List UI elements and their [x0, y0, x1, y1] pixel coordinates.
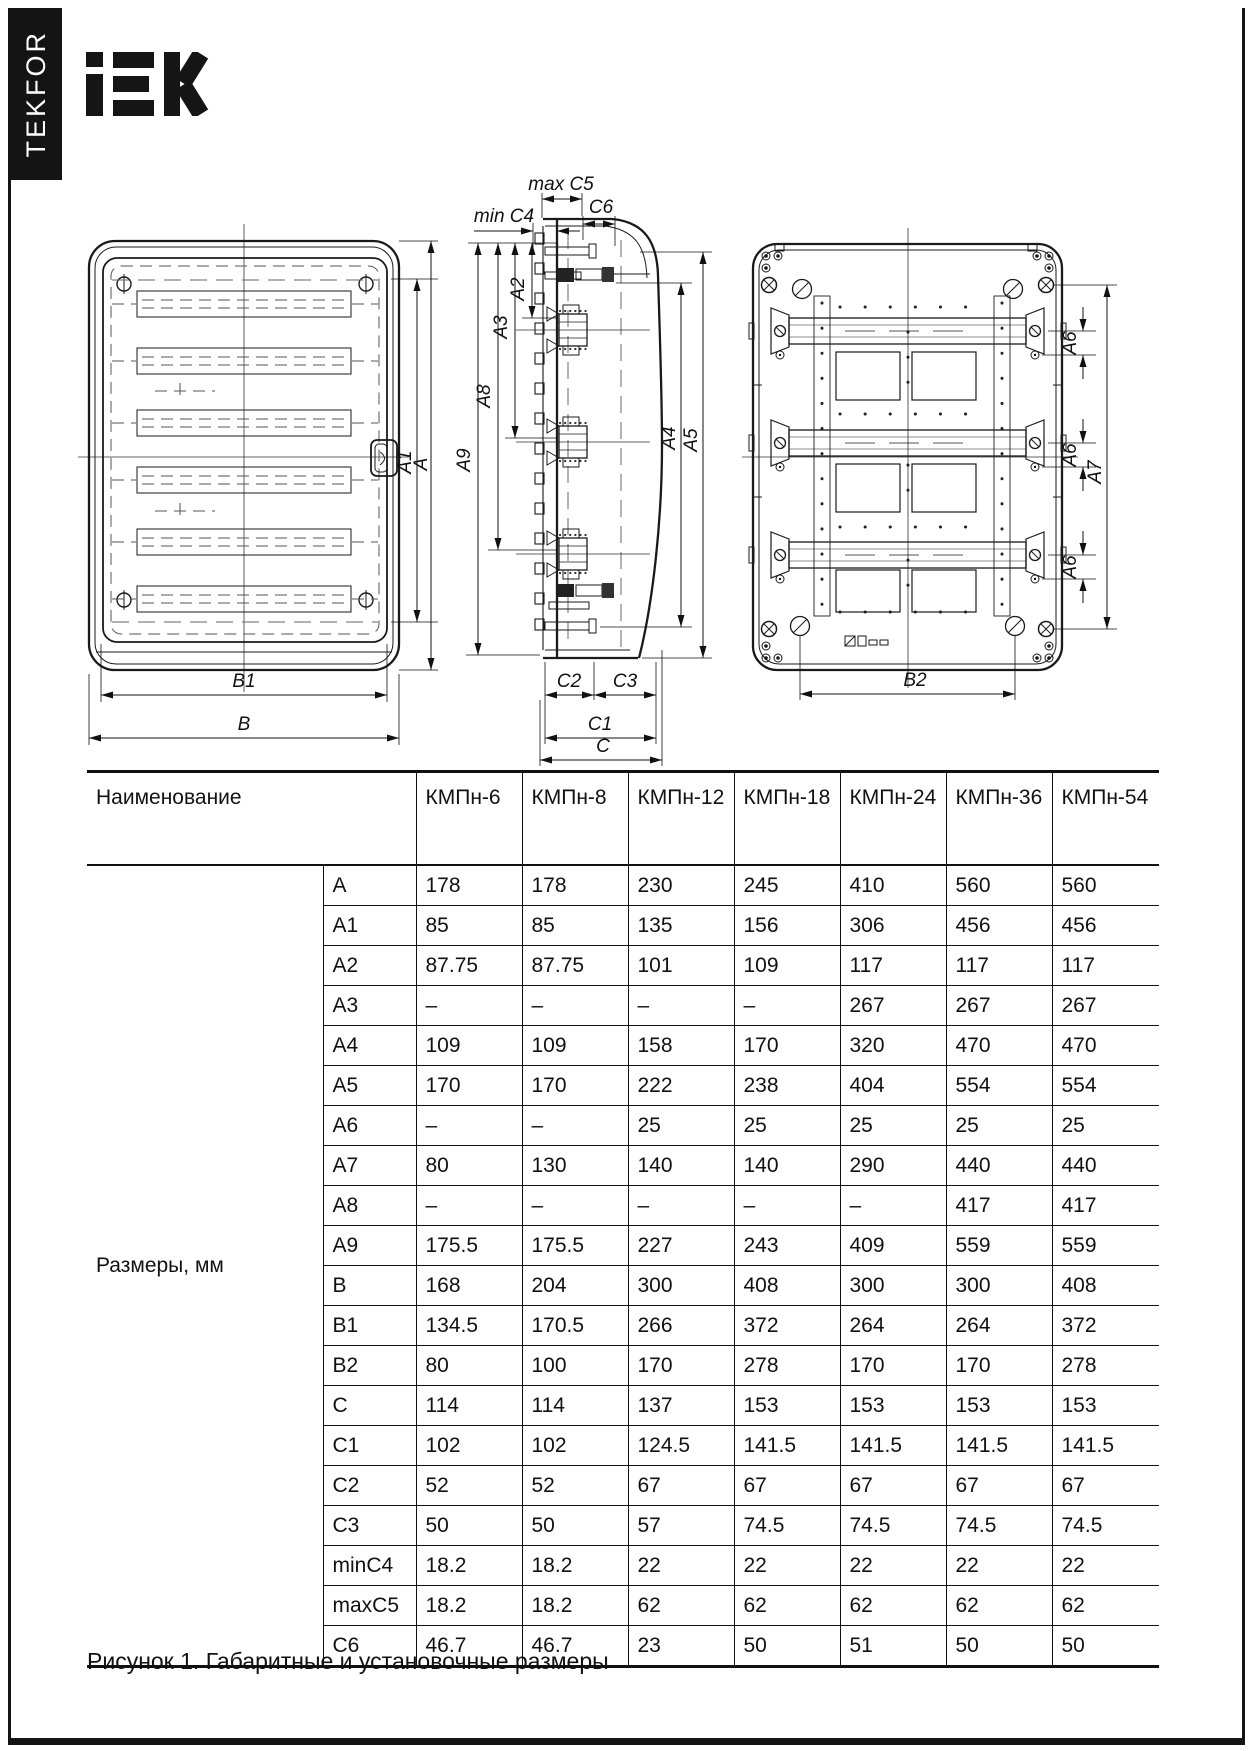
value-cell: 130 [522, 1146, 628, 1186]
dim-label-a9: A9 [454, 448, 475, 473]
door-screws [117, 274, 373, 610]
value-cell: 554 [1052, 1066, 1159, 1106]
value-cell: 23 [628, 1626, 734, 1667]
value-cell: 117 [946, 946, 1052, 986]
value-cell: 50 [734, 1626, 840, 1667]
figure-caption: Рисунок 1. Габаритные и установочные раз… [87, 1648, 609, 1675]
value-cell: – [734, 1186, 840, 1226]
dim-label-c6: C6 [589, 197, 614, 218]
value-cell: 25 [946, 1106, 1052, 1146]
value-cell: 170 [946, 1346, 1052, 1386]
value-cell: 25 [840, 1106, 946, 1146]
value-cell: 85 [522, 906, 628, 946]
catalog-page: TEKFOR [0, 0, 1248, 1751]
value-cell: 408 [1052, 1266, 1159, 1306]
value-cell: 560 [946, 865, 1052, 906]
header-model-label: КМПн-8 [522, 772, 628, 866]
tekfor-banner-label: TEKFOR [21, 30, 52, 158]
group-label-cell: Размеры, мм [87, 865, 323, 1667]
value-cell: – [522, 986, 628, 1026]
value-cell: 87.75 [522, 946, 628, 986]
dim-label-b: B [238, 714, 251, 735]
value-cell: 456 [946, 906, 1052, 946]
value-cell: 204 [522, 1266, 628, 1306]
value-cell: 278 [734, 1346, 840, 1386]
dim-label-cell: C2 [323, 1466, 416, 1506]
value-cell: – [522, 1186, 628, 1226]
value-cell: 409 [840, 1226, 946, 1266]
dim-label-cell: maxC5 [323, 1586, 416, 1626]
value-cell: 559 [946, 1226, 1052, 1266]
value-cell: 141.5 [734, 1426, 840, 1466]
dim-label-cell: A9 [323, 1226, 416, 1266]
dim-label-a8: A8 [474, 384, 495, 409]
value-cell: 306 [840, 906, 946, 946]
dim-label-cell: minC4 [323, 1546, 416, 1586]
value-cell: 101 [628, 946, 734, 986]
value-cell: 74.5 [946, 1506, 1052, 1546]
value-cell: 85 [416, 906, 522, 946]
value-cell: 117 [840, 946, 946, 986]
value-cell: 175.5 [522, 1226, 628, 1266]
value-cell: 62 [628, 1586, 734, 1626]
dim-label-c3: C3 [613, 671, 638, 692]
back-dimensions: A6 A6 A6 A7 B2 [800, 285, 1117, 700]
value-cell: 410 [840, 865, 946, 906]
dim-label-b1: B1 [232, 671, 255, 692]
dim-label-cell: B2 [323, 1346, 416, 1386]
dim-label-a6-2: A6 [1060, 443, 1081, 468]
value-cell: – [416, 1186, 522, 1226]
header-model-label: КМПн-24 [840, 772, 946, 866]
value-cell: 18.2 [416, 1546, 522, 1586]
value-cell: 67 [734, 1466, 840, 1506]
value-cell: 74.5 [1052, 1506, 1159, 1546]
value-cell: 158 [628, 1026, 734, 1066]
value-cell: 102 [416, 1426, 522, 1466]
value-cell: 440 [946, 1146, 1052, 1186]
dim-label-cell: C3 [323, 1506, 416, 1546]
value-cell: 50 [522, 1506, 628, 1546]
value-cell: 470 [946, 1026, 1052, 1066]
value-cell: 22 [946, 1546, 1052, 1586]
value-cell: 62 [946, 1586, 1052, 1626]
value-cell: 170 [522, 1066, 628, 1106]
dim-label-cell: A8 [323, 1186, 416, 1226]
page-right-rule [1242, 8, 1245, 1745]
value-cell: 100 [522, 1346, 628, 1386]
value-cell: 140 [628, 1146, 734, 1186]
value-cell: 62 [840, 1586, 946, 1626]
value-cell: 264 [946, 1306, 1052, 1346]
value-cell: 243 [734, 1226, 840, 1266]
value-cell: 227 [628, 1226, 734, 1266]
value-cell: – [628, 1186, 734, 1226]
certification-marks [845, 636, 888, 646]
table-row: Размеры, ммA178178230245410560560 [87, 865, 1159, 906]
value-cell: 170 [416, 1066, 522, 1106]
value-cell: – [628, 986, 734, 1026]
dim-label-b2: B2 [903, 670, 927, 691]
value-cell: 137 [628, 1386, 734, 1426]
tekfor-banner: TEKFOR [10, 8, 62, 180]
value-cell: 222 [628, 1066, 734, 1106]
front-view-drawing: A1 A B1 B [70, 200, 440, 765]
value-cell: 22 [840, 1546, 946, 1586]
value-cell: 141.5 [840, 1426, 946, 1466]
value-cell: 153 [946, 1386, 1052, 1426]
value-cell: 51 [840, 1626, 946, 1667]
value-cell: 80 [416, 1346, 522, 1386]
iek-logo [86, 52, 214, 116]
dim-label-a5: A5 [681, 428, 702, 453]
value-cell: 25 [1052, 1106, 1159, 1146]
value-cell: 87.75 [416, 946, 522, 986]
value-cell: 25 [628, 1106, 734, 1146]
dim-label-cell: A [323, 865, 416, 906]
dim-label-cell: A6 [323, 1106, 416, 1146]
value-cell: 109 [522, 1026, 628, 1066]
value-cell: 554 [946, 1066, 1052, 1106]
value-cell: 300 [628, 1266, 734, 1306]
value-cell: 178 [416, 865, 522, 906]
module-strips [112, 280, 378, 622]
value-cell: 245 [734, 865, 840, 906]
value-cell: 141.5 [1052, 1426, 1159, 1466]
value-cell: – [734, 986, 840, 1026]
value-cell: 440 [1052, 1146, 1159, 1186]
value-cell: 62 [1052, 1586, 1159, 1626]
value-cell: 560 [1052, 865, 1159, 906]
value-cell: 52 [416, 1466, 522, 1506]
value-cell: 238 [734, 1066, 840, 1106]
value-cell: 267 [840, 986, 946, 1026]
value-cell: 109 [416, 1026, 522, 1066]
value-cell: 300 [840, 1266, 946, 1306]
value-cell: 170.5 [522, 1306, 628, 1346]
dim-label-c: C [596, 736, 610, 757]
dim-label-a3: A3 [491, 315, 512, 340]
value-cell: 62 [734, 1586, 840, 1626]
value-cell: 417 [1052, 1186, 1159, 1226]
dim-label-a4: A4 [659, 426, 680, 450]
din-rails [771, 308, 1044, 583]
value-cell: 124.5 [628, 1426, 734, 1466]
value-cell: 153 [734, 1386, 840, 1426]
dim-label-c2: C2 [557, 671, 582, 692]
dim-label-min-c4: min C4 [474, 206, 534, 227]
value-cell: 50 [946, 1626, 1052, 1667]
table-header-row: НаименованиеКМПн-6КМПн-8КМПн-12КМПн-18КМ… [87, 772, 1159, 866]
value-cell: 67 [1052, 1466, 1159, 1506]
header-model-label: КМПн-36 [946, 772, 1052, 866]
value-cell: 74.5 [840, 1506, 946, 1546]
value-cell: 153 [840, 1386, 946, 1426]
value-cell: 18.2 [522, 1546, 628, 1586]
dim-label-max-c5: max C5 [528, 174, 594, 195]
value-cell: 170 [628, 1346, 734, 1386]
dim-label-cell: C1 [323, 1426, 416, 1466]
value-cell: 559 [1052, 1226, 1159, 1266]
dim-label-cell: A5 [323, 1066, 416, 1106]
value-cell: 134.5 [416, 1306, 522, 1346]
value-cell: 140 [734, 1146, 840, 1186]
value-cell: 50 [1052, 1626, 1159, 1667]
side-view-drawing: A2 A3 A8 A9 A4 A5 max C5 C6 min C4 [415, 150, 715, 772]
value-cell: 22 [734, 1546, 840, 1586]
value-cell: – [840, 1186, 946, 1226]
value-cell: 67 [946, 1466, 1052, 1506]
value-cell: 109 [734, 946, 840, 986]
value-cell: 153 [1052, 1386, 1159, 1426]
value-cell: 267 [946, 986, 1052, 1026]
value-cell: 102 [522, 1426, 628, 1466]
value-cell: 230 [628, 865, 734, 906]
value-cell: 178 [522, 865, 628, 906]
top-fastener [545, 244, 650, 282]
side-dimensions: A2 A3 A8 A9 A4 A5 max C5 C6 min C4 [454, 174, 712, 766]
value-cell: 170 [840, 1346, 946, 1386]
header-name-label: Наименование [87, 772, 416, 866]
value-cell: 57 [628, 1506, 734, 1546]
header-model-label: КМПн-12 [628, 772, 734, 866]
value-cell: 67 [840, 1466, 946, 1506]
value-cell: 408 [734, 1266, 840, 1306]
bottom-fastener [545, 583, 614, 633]
value-cell: 141.5 [946, 1426, 1052, 1466]
value-cell: 22 [628, 1546, 734, 1586]
dim-label-cell: A1 [323, 906, 416, 946]
value-cell: 300 [946, 1266, 1052, 1306]
value-cell: 470 [1052, 1026, 1159, 1066]
side-body [516, 219, 662, 658]
value-cell: 135 [628, 906, 734, 946]
value-cell: 404 [840, 1066, 946, 1106]
value-cell: 417 [946, 1186, 1052, 1226]
value-cell: 290 [840, 1146, 946, 1186]
value-cell: – [416, 1106, 522, 1146]
dim-label-c1: C1 [588, 714, 612, 735]
value-cell: 18.2 [416, 1586, 522, 1626]
dim-label-cell: C [323, 1386, 416, 1426]
value-cell: 67 [628, 1466, 734, 1506]
value-cell: 18.2 [522, 1586, 628, 1626]
dim-label-a6-3: A6 [1060, 555, 1081, 580]
dim-label-cell: A3 [323, 986, 416, 1026]
header-model-label: КМПн-54 [1052, 772, 1159, 866]
dim-label-a6-1: A6 [1060, 331, 1081, 356]
value-cell: 22 [1052, 1546, 1159, 1586]
page-bottom-rule [8, 1738, 1245, 1745]
iek-logo-glyphs [86, 52, 201, 116]
value-cell: 80 [416, 1146, 522, 1186]
page-left-rule [8, 8, 11, 1745]
value-cell: 278 [1052, 1346, 1159, 1386]
value-cell: 170 [734, 1026, 840, 1066]
value-cell: 25 [734, 1106, 840, 1146]
dim-label-a2: A2 [508, 277, 529, 302]
value-cell: 267 [1052, 986, 1159, 1026]
value-cell: 320 [840, 1026, 946, 1066]
back-view-drawing: A6 A6 A6 A7 B2 [735, 200, 1130, 712]
dim-label-cell: B1 [323, 1306, 416, 1346]
value-cell: 52 [522, 1466, 628, 1506]
value-cell: 264 [840, 1306, 946, 1346]
value-cell: 117 [1052, 946, 1159, 986]
dim-label-cell: A4 [323, 1026, 416, 1066]
value-cell: 156 [734, 906, 840, 946]
value-cell: 266 [628, 1306, 734, 1346]
value-cell: 372 [1052, 1306, 1159, 1346]
dim-label-cell: B [323, 1266, 416, 1306]
header-model-label: КМПн-18 [734, 772, 840, 866]
value-cell: 175.5 [416, 1226, 522, 1266]
header-model-label: КМПн-6 [416, 772, 522, 866]
value-cell: 50 [416, 1506, 522, 1546]
value-cell: 114 [416, 1386, 522, 1426]
value-cell: 372 [734, 1306, 840, 1346]
dim-label-a7: A7 [1085, 459, 1106, 485]
value-cell: 74.5 [734, 1506, 840, 1546]
dim-label-cell: A7 [323, 1146, 416, 1186]
value-cell: – [416, 986, 522, 1026]
value-cell: – [522, 1106, 628, 1146]
value-cell: 456 [1052, 906, 1159, 946]
value-cell: 114 [522, 1386, 628, 1426]
dim-label-cell: A2 [323, 946, 416, 986]
dimensions-table: НаименованиеКМПн-6КМПн-8КМПн-12КМПн-18КМ… [87, 770, 1159, 1668]
value-cell: 168 [416, 1266, 522, 1306]
rail-cross-sections [516, 305, 650, 579]
